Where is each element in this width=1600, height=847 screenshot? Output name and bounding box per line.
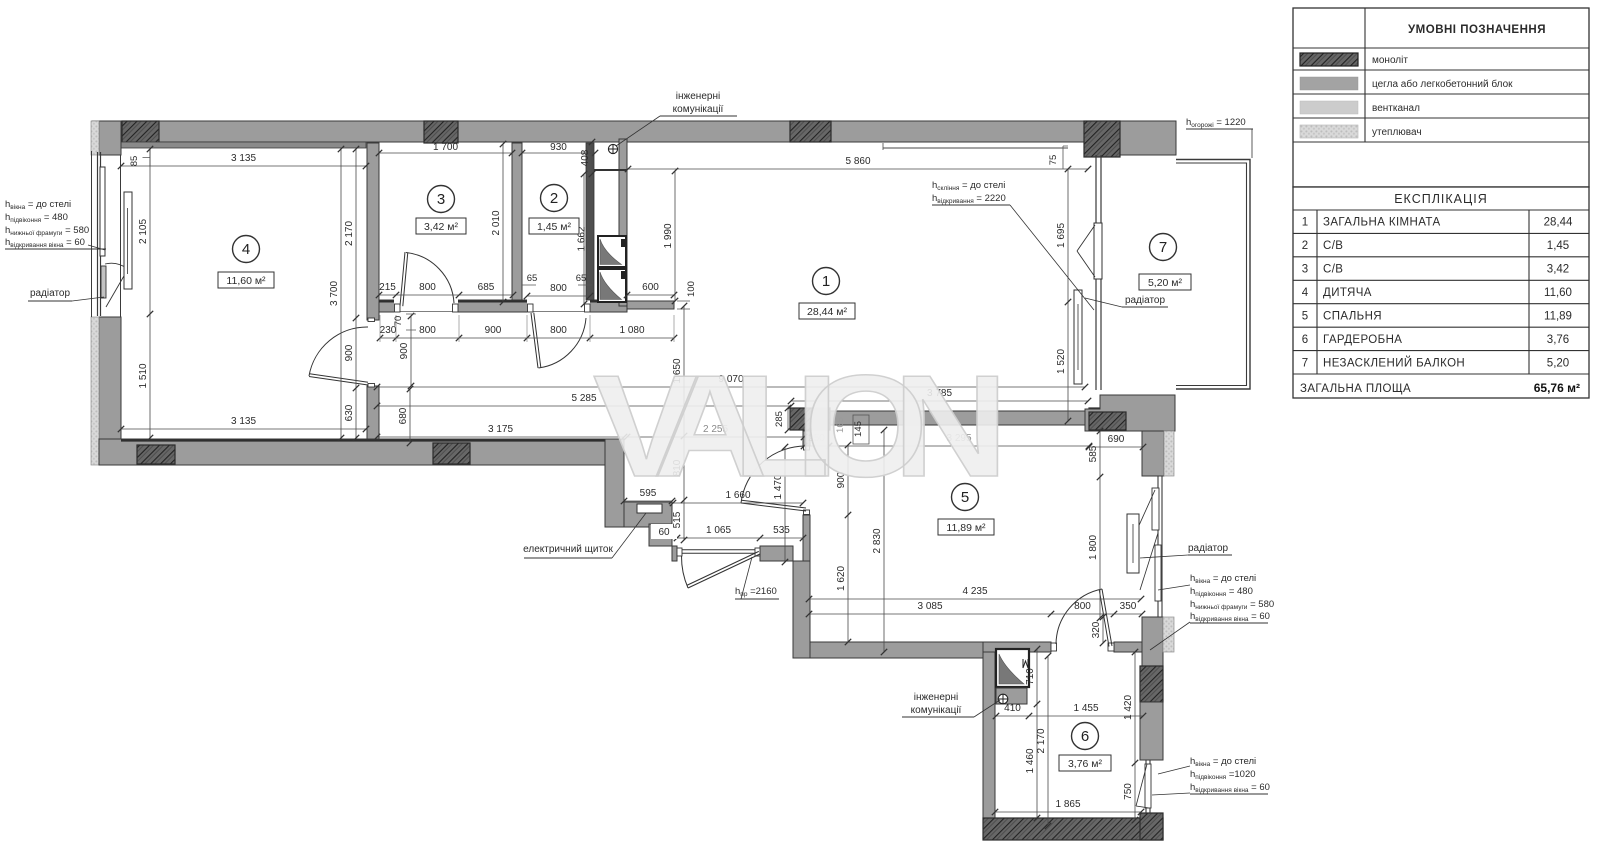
svg-text:60: 60 — [658, 527, 670, 538]
svg-text:4 235: 4 235 — [962, 586, 987, 597]
svg-text:685: 685 — [478, 282, 495, 293]
svg-text:710: 710 — [1025, 668, 1036, 685]
svg-text:900: 900 — [344, 344, 355, 361]
svg-text:ДИТЯЧА: ДИТЯЧА — [1323, 287, 1372, 299]
svg-text:5: 5 — [1302, 310, 1308, 322]
svg-text:100: 100 — [686, 281, 697, 297]
svg-text:900: 900 — [399, 342, 410, 359]
svg-text:інженерні: інженерні — [914, 692, 958, 703]
svg-text:800: 800 — [550, 283, 567, 294]
svg-text:С/В: С/В — [1323, 264, 1343, 276]
svg-text:5 860: 5 860 — [845, 156, 870, 167]
svg-text:1 065: 1 065 — [706, 525, 731, 536]
svg-text:535: 535 — [773, 525, 790, 536]
svg-text:VALION: VALION — [593, 346, 998, 508]
svg-text:1 620: 1 620 — [836, 566, 847, 591]
svg-text:5,20 м²: 5,20 м² — [1148, 277, 1183, 289]
svg-text:2 170: 2 170 — [344, 221, 355, 246]
svg-text:11,89: 11,89 — [1544, 310, 1572, 322]
svg-text:7: 7 — [1159, 239, 1167, 256]
svg-text:750: 750 — [1123, 783, 1134, 800]
svg-text:вентканал: вентканал — [1372, 103, 1420, 114]
svg-text:ГАРДЕРОБНА: ГАРДЕРОБНА — [1323, 334, 1402, 346]
svg-text:2 010: 2 010 — [491, 210, 502, 235]
svg-text:1 700: 1 700 — [433, 142, 458, 153]
svg-text:радіатор: радіатор — [30, 288, 71, 299]
svg-text:2 105: 2 105 — [138, 219, 149, 244]
svg-text:1 695: 1 695 — [1056, 223, 1067, 248]
svg-text:інженерні: інженерні — [676, 91, 720, 102]
svg-text:408: 408 — [580, 149, 591, 166]
svg-text:4: 4 — [242, 241, 250, 258]
svg-text:електричний щиток: електричний щиток — [523, 544, 613, 555]
svg-text:65: 65 — [576, 273, 587, 284]
svg-text:3,76 м²: 3,76 м² — [1068, 758, 1103, 770]
svg-text:800: 800 — [419, 325, 436, 336]
svg-text:ЗАГАЛЬНА ПЛОЩА: ЗАГАЛЬНА ПЛОЩА — [1300, 383, 1411, 395]
svg-text:3: 3 — [1302, 264, 1308, 276]
svg-text:3 085: 3 085 — [917, 601, 942, 612]
svg-text:320: 320 — [1091, 621, 1102, 638]
svg-text:65: 65 — [527, 273, 538, 284]
svg-text:3 175: 3 175 — [488, 424, 513, 435]
svg-text:800: 800 — [550, 325, 567, 336]
svg-text:1,45 м²: 1,45 м² — [537, 221, 572, 233]
svg-text:630: 630 — [344, 404, 355, 421]
svg-text:690: 690 — [1108, 434, 1125, 445]
svg-text:цегла або легкобетонний блок: цегла або легкобетонний блок — [1372, 78, 1513, 90]
svg-text:215: 215 — [379, 282, 396, 293]
svg-text:3 700: 3 700 — [329, 281, 340, 306]
svg-text:28,44 м²: 28,44 м² — [807, 306, 847, 318]
svg-text:2: 2 — [1302, 240, 1308, 252]
svg-text:680: 680 — [398, 407, 409, 424]
svg-text:65,76 м²: 65,76 м² — [1534, 381, 1580, 395]
svg-text:515: 515 — [672, 511, 683, 528]
svg-text:3,42 м²: 3,42 м² — [424, 221, 459, 233]
svg-text:2 170: 2 170 — [1036, 728, 1047, 753]
svg-text:радіатор: радіатор — [1125, 295, 1166, 306]
svg-text:3,42: 3,42 — [1547, 264, 1569, 276]
svg-text:1 800: 1 800 — [1088, 535, 1099, 560]
svg-text:1 460: 1 460 — [1025, 748, 1036, 773]
svg-text:75: 75 — [1048, 155, 1059, 166]
svg-text:1 520: 1 520 — [1056, 349, 1067, 374]
svg-text:1 990: 1 990 — [663, 223, 674, 248]
svg-text:комунікації: комунікації — [911, 705, 962, 716]
svg-text:радіатор: радіатор — [1188, 543, 1229, 554]
svg-text:2 830: 2 830 — [872, 528, 883, 553]
svg-text:11,60: 11,60 — [1544, 287, 1572, 299]
svg-text:900: 900 — [485, 325, 502, 336]
svg-text:800: 800 — [419, 282, 436, 293]
svg-text:6: 6 — [1081, 728, 1089, 745]
svg-text:410: 410 — [1004, 703, 1021, 714]
svg-text:С/В: С/В — [1323, 240, 1343, 252]
svg-text:11,60 м²: 11,60 м² — [226, 275, 266, 287]
svg-text:7: 7 — [1302, 357, 1308, 369]
svg-text:28,44: 28,44 — [1544, 217, 1573, 229]
svg-text:ЕКСПЛІКАЦІЯ: ЕКСПЛІКАЦІЯ — [1394, 192, 1488, 206]
svg-text:70: 70 — [393, 316, 404, 327]
svg-text:930: 930 — [550, 142, 567, 153]
svg-text:утеплювач: утеплювач — [1372, 127, 1422, 138]
svg-text:УМОВНІ ПОЗНАЧЕННЯ: УМОВНІ ПОЗНАЧЕННЯ — [1408, 24, 1546, 36]
svg-text:600: 600 — [642, 282, 659, 293]
svg-text:1 420: 1 420 — [1123, 695, 1134, 720]
svg-text:3,76: 3,76 — [1547, 334, 1569, 346]
svg-text:350: 350 — [1120, 601, 1137, 612]
svg-text:1 080: 1 080 — [619, 325, 644, 336]
svg-text:1,45: 1,45 — [1547, 240, 1569, 252]
svg-text:моноліт: моноліт — [1372, 55, 1408, 66]
svg-text:ЗАГАЛЬНА КІМНАТА: ЗАГАЛЬНА КІМНАТА — [1323, 217, 1441, 229]
svg-text:НЕЗАСКЛЕНИЙ БАЛКОН: НЕЗАСКЛЕНИЙ БАЛКОН — [1323, 356, 1465, 369]
svg-text:1 455: 1 455 — [1073, 703, 1098, 714]
svg-text:585: 585 — [1088, 445, 1099, 462]
svg-text:85: 85 — [129, 156, 140, 167]
svg-text:4: 4 — [1302, 287, 1309, 299]
svg-text:комунікації: комунікації — [673, 104, 724, 115]
svg-text:1 865: 1 865 — [1055, 799, 1080, 810]
svg-text:5,20: 5,20 — [1547, 357, 1569, 369]
svg-text:6: 6 — [1302, 334, 1308, 346]
svg-text:1: 1 — [1302, 217, 1308, 229]
svg-text:800: 800 — [1074, 601, 1091, 612]
svg-text:3 135: 3 135 — [231, 416, 256, 427]
svg-text:11,89 м²: 11,89 м² — [946, 522, 986, 534]
svg-text:2: 2 — [550, 190, 558, 207]
svg-text:3 135: 3 135 — [231, 153, 256, 164]
svg-text:1: 1 — [822, 273, 830, 290]
svg-text:СПАЛЬНЯ: СПАЛЬНЯ — [1323, 310, 1382, 322]
svg-text:1 510: 1 510 — [138, 363, 149, 388]
svg-text:3: 3 — [437, 191, 445, 208]
